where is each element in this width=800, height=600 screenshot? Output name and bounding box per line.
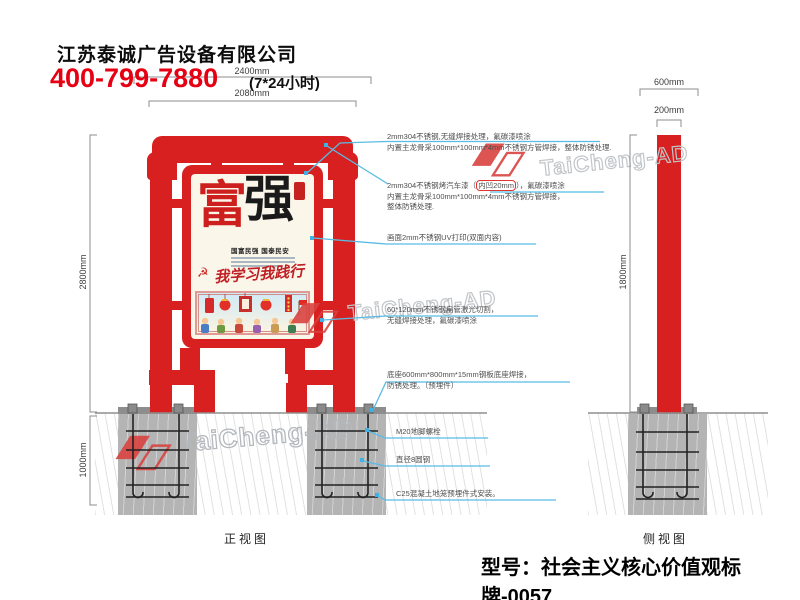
front-view-label: 正视图 [224, 530, 269, 547]
model-number: 型号：社会主义核心价值观标牌-0057 [481, 551, 800, 600]
front-left-foundation-block [118, 414, 197, 515]
annotation-sign-box: 2mm304不锈钢烤汽车漆（内凹20mm），氟碳漆喷涂 内置主龙骨采100mm*… [387, 181, 565, 213]
phone-number: 400-799-7880 [50, 63, 218, 94]
drawing-sheet: 江苏泰诚广告设备有限公司 400-799-7880 (7*24小时) 富 强 国… [0, 0, 800, 600]
annotation-line: 内置主龙骨采100mm*100mm*4mm不锈钢方管焊接，整体防锈处理. [387, 143, 612, 154]
poster-fineprint-line [231, 257, 295, 259]
frame-top-bar [152, 136, 353, 163]
annotation-line: 防锈处理。（预埋件） [387, 381, 531, 392]
annotation-base-plate: 底座600mm*800mm*15mm钢板底座焊接， 防锈处理。（预埋件） [387, 370, 531, 391]
annotation-line: 2mm304不锈钢烤汽车漆（内凹20mm），氟碳漆喷涂 [387, 181, 565, 192]
annotation-line: 无缝焊接处理，氟碳漆喷涂 [387, 316, 498, 327]
leg-left-lower [194, 383, 215, 413]
annotation-outer-frame: 2mm304不锈钢,无缝焊接处理，氟碳漆喷涂 内置主龙骨采100mm*100mm… [387, 132, 612, 153]
dim-front-sign-width: 2080mm [222, 88, 282, 98]
annotation-text: 2mm304不锈钢烤汽车漆（ [387, 181, 476, 190]
poster-slogan: 我学习我践行 [213, 260, 304, 287]
annotation-line: 内置主龙骨采100mm*100mm*4mm不锈钢方管焊接， [387, 192, 565, 203]
annotation-round-steel: 直径8圆钢 [396, 455, 430, 466]
poster-char-qiang: 强 [244, 174, 294, 224]
annotation-line: 直径8圆钢 [396, 455, 430, 466]
party-emblem-icon: ☭ [197, 266, 209, 279]
frame-sidebar-left-b [172, 301, 182, 310]
annotation-line: 画面2mm不锈钢UV打印(双面内容) [387, 233, 502, 244]
leg-right-lower [286, 383, 307, 413]
annotation-concrete: C25混凝土地笼预埋件式安装。 [396, 489, 500, 500]
frame-sidebar-right-a [323, 199, 333, 208]
annotation-uv-print: 画面2mm不锈钢UV打印(双面内容) [387, 233, 502, 244]
dim-front-total-width: 2400mm [222, 66, 282, 76]
annotation-highlight: 内凹20mm [476, 180, 516, 191]
side-pole [657, 135, 681, 413]
annotation-line: 整体防锈处理. [387, 202, 565, 213]
annotation-text: ），氟碳漆喷涂 [516, 181, 565, 190]
annotation-line: M20地脚螺栓 [396, 427, 441, 438]
side-view-label: 侧视图 [643, 530, 688, 547]
frame-sidebar-right-b [323, 301, 333, 310]
poster: 富 强 国富民强 国泰民安 ☭ 我学习我践行 [191, 174, 314, 339]
annotation-line: 底座600mm*800mm*15mm钢板底座焊接， [387, 370, 531, 381]
frame-sidebar-left-a [172, 199, 182, 208]
dim-front-height: 2800mm [78, 249, 88, 295]
dim-side-pole-height: 1800mm [618, 249, 628, 295]
annotation-line: 60*120mm不锈钢扁管激光切割， [387, 305, 498, 316]
side-foundation-block [628, 414, 707, 515]
annotation-line: 2mm304不锈钢,无缝焊接处理，氟碳漆喷涂 [387, 132, 612, 143]
annotation-anchor-bolt: M20地脚螺栓 [396, 427, 441, 438]
annotation-line: C25混凝土地笼预埋件式安装。 [396, 489, 500, 500]
poster-char-fu: 富 [197, 180, 247, 230]
front-right-foundation-block [307, 414, 386, 515]
dim-side-pole-width: 200mm [639, 105, 699, 115]
poster-subtitle: 国富民强 国泰民安 [231, 245, 289, 255]
dim-foundation-depth: 1000mm [78, 437, 88, 483]
dim-side-base-width: 600mm [639, 77, 699, 87]
poster-illustration-icon [195, 291, 310, 335]
annotation-flat-tube: 60*120mm不锈钢扁管激光切割， 无缝焊接处理，氟碳漆喷涂 [387, 305, 498, 326]
poster-seal [294, 182, 305, 200]
